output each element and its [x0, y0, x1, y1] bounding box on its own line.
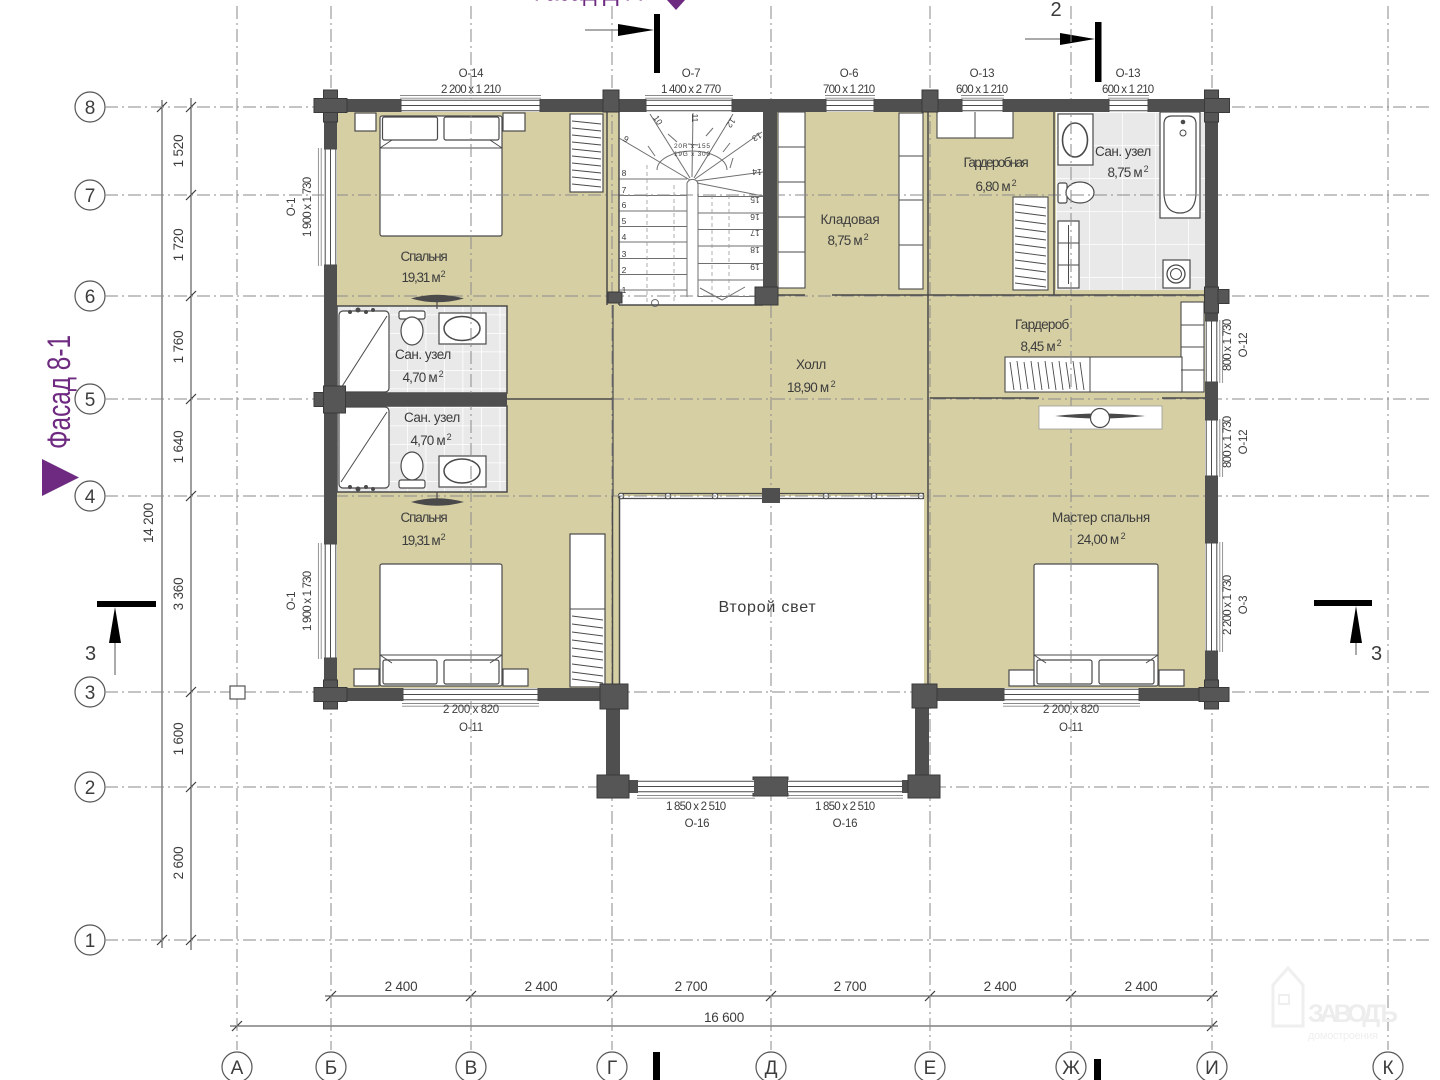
svg-text:15: 15 [750, 195, 760, 205]
svg-text:2: 2 [1057, 338, 1062, 348]
svg-text:7: 7 [622, 185, 627, 195]
svg-text:О-3: О-3 [1238, 596, 1250, 615]
svg-text:О-11: О-11 [459, 722, 483, 734]
svg-text:1 640: 1 640 [171, 431, 186, 464]
svg-text:3: 3 [1371, 643, 1382, 665]
svg-text:1 900 x 1 730: 1 900 x 1 730 [302, 571, 314, 631]
svg-text:О-14: О-14 [459, 68, 485, 80]
svg-text:Сан. узел: Сан. узел [395, 347, 451, 362]
svg-text:600 x 1 210: 600 x 1 210 [956, 84, 1008, 96]
svg-text:2: 2 [439, 369, 444, 379]
svg-text:1: 1 [85, 931, 96, 952]
svg-text:6: 6 [622, 200, 627, 210]
svg-text:О-13: О-13 [1116, 68, 1141, 80]
svg-text:1 760: 1 760 [171, 331, 186, 364]
svg-text:20R x 155: 20R x 155 [674, 143, 710, 150]
svg-text:Фасад Д-А: Фасад Д-А [528, 0, 642, 7]
svg-text:1 850 x 2 510: 1 850 x 2 510 [666, 801, 726, 813]
svg-text:19: 19 [750, 262, 760, 272]
svg-text:О-13: О-13 [970, 68, 995, 80]
svg-text:16 600: 16 600 [704, 1010, 744, 1025]
svg-text:11: 11 [690, 114, 700, 123]
svg-text:2: 2 [864, 232, 869, 242]
svg-text:16: 16 [750, 212, 760, 222]
svg-text:700 x 1 210: 700 x 1 210 [823, 84, 875, 96]
svg-text:2 200 x 1 730: 2 200 x 1 730 [1222, 575, 1234, 635]
svg-text:8,75 м: 8,75 м [828, 233, 863, 248]
svg-text:2: 2 [831, 379, 836, 389]
svg-text:800 x 1 730: 800 x 1 730 [1222, 416, 1234, 468]
svg-text:600 x 1 210: 600 x 1 210 [1102, 84, 1154, 96]
svg-text:Кладовая: Кладовая [821, 212, 880, 227]
svg-text:Б: Б [325, 1058, 337, 1079]
svg-text:Г: Г [607, 1058, 617, 1079]
svg-text:2 400: 2 400 [385, 979, 418, 994]
svg-text:5: 5 [85, 390, 96, 411]
svg-text:О-6: О-6 [840, 68, 859, 80]
svg-text:Спальня: Спальня [401, 249, 448, 264]
svg-text:Мастер спальня: Мастер спальня [1052, 510, 1150, 525]
svg-text:О-16: О-16 [685, 818, 710, 830]
svg-text:О-1: О-1 [286, 198, 298, 217]
svg-text:Сан. узел: Сан. узел [1095, 144, 1151, 159]
svg-text:14: 14 [752, 167, 762, 177]
svg-text:О-7: О-7 [682, 68, 701, 80]
svg-text:2: 2 [1050, 0, 1061, 21]
svg-text:А: А [231, 1058, 244, 1079]
svg-text:Е: Е [924, 1058, 937, 1079]
svg-text:1 850 x 2 510: 1 850 x 2 510 [815, 801, 875, 813]
svg-text:6,80 м: 6,80 м [976, 179, 1011, 194]
svg-text:18: 18 [750, 245, 760, 255]
svg-text:О-11: О-11 [1059, 722, 1083, 734]
svg-text:2 700: 2 700 [675, 979, 708, 994]
svg-text:19,31 м: 19,31 м [402, 533, 441, 548]
svg-text:1 400 x 2 770: 1 400 x 2 770 [661, 84, 721, 96]
svg-text:3: 3 [622, 249, 627, 259]
svg-text:19G x 300: 19G x 300 [674, 151, 710, 158]
svg-text:4,70 м: 4,70 м [403, 370, 438, 385]
svg-text:2 400: 2 400 [1125, 979, 1158, 994]
svg-text:1 720: 1 720 [171, 229, 186, 262]
svg-text:8,75 м: 8,75 м [1108, 165, 1143, 180]
svg-text:5: 5 [622, 216, 627, 226]
svg-text:Гардеробная: Гардеробная [964, 155, 1029, 170]
svg-text:Д: Д [765, 1058, 778, 1079]
svg-text:Спальня: Спальня [401, 510, 448, 525]
svg-text:Холл: Холл [796, 357, 826, 372]
svg-text:4: 4 [622, 232, 627, 242]
svg-text:О-12: О-12 [1238, 430, 1250, 455]
svg-text:К: К [1382, 1058, 1393, 1079]
svg-text:Сан. узел: Сан. узел [404, 410, 460, 425]
svg-text:О-12: О-12 [1238, 333, 1250, 358]
svg-text:14 200: 14 200 [141, 503, 156, 543]
svg-text:24,00 м: 24,00 м [1077, 532, 1119, 547]
svg-text:2: 2 [1012, 178, 1017, 188]
svg-text:3: 3 [85, 683, 96, 704]
svg-text:В: В [465, 1058, 478, 1079]
svg-text:2 700: 2 700 [834, 979, 867, 994]
svg-text:домостроения: домостроения [1308, 1030, 1378, 1042]
svg-text:18,90 м: 18,90 м [787, 380, 829, 395]
svg-text:2: 2 [441, 532, 446, 542]
svg-text:800 x 1 730: 800 x 1 730 [1222, 319, 1234, 371]
svg-text:7: 7 [85, 186, 96, 207]
svg-text:2 200 x 1 210: 2 200 x 1 210 [441, 84, 501, 96]
svg-text:8: 8 [85, 98, 96, 119]
svg-text:О-1: О-1 [286, 592, 298, 611]
svg-text:Второй свет: Второй свет [719, 599, 817, 616]
svg-text:Ж: Ж [1062, 1058, 1080, 1079]
svg-text:6: 6 [85, 287, 96, 308]
svg-text:8: 8 [622, 168, 627, 178]
svg-text:1 600: 1 600 [171, 723, 186, 756]
svg-text:2: 2 [622, 265, 627, 275]
svg-text:2 400: 2 400 [525, 979, 558, 994]
svg-text:1 900 x 1 730: 1 900 x 1 730 [302, 177, 314, 237]
svg-text:И: И [1205, 1058, 1219, 1079]
svg-text:2 400: 2 400 [984, 979, 1017, 994]
svg-text:4,70 м: 4,70 м [411, 433, 446, 448]
svg-text:2 600: 2 600 [171, 847, 186, 880]
svg-text:О-16: О-16 [833, 818, 858, 830]
svg-text:2: 2 [1121, 531, 1126, 541]
svg-text:17: 17 [750, 228, 760, 238]
svg-text:2 200 x 820: 2 200 x 820 [443, 704, 499, 716]
svg-text:2: 2 [85, 778, 96, 799]
svg-text:Фасад 8-1: Фасад 8-1 [41, 335, 77, 449]
svg-text:2: 2 [441, 269, 446, 279]
svg-text:19,31 м: 19,31 м [402, 270, 441, 285]
svg-text:3 360: 3 360 [171, 578, 186, 611]
svg-text:Гардероб: Гардероб [1015, 317, 1069, 332]
svg-text:2: 2 [447, 432, 452, 442]
svg-text:8,45 м: 8,45 м [1021, 339, 1056, 354]
svg-text:3: 3 [85, 643, 96, 665]
svg-text:4: 4 [85, 487, 96, 508]
svg-text:1 520: 1 520 [171, 135, 186, 168]
svg-text:2 200 x 820: 2 200 x 820 [1043, 704, 1099, 716]
svg-text:ЗАВОДЪ: ЗАВОДЪ [1308, 1000, 1398, 1028]
svg-text:2: 2 [1144, 164, 1149, 174]
